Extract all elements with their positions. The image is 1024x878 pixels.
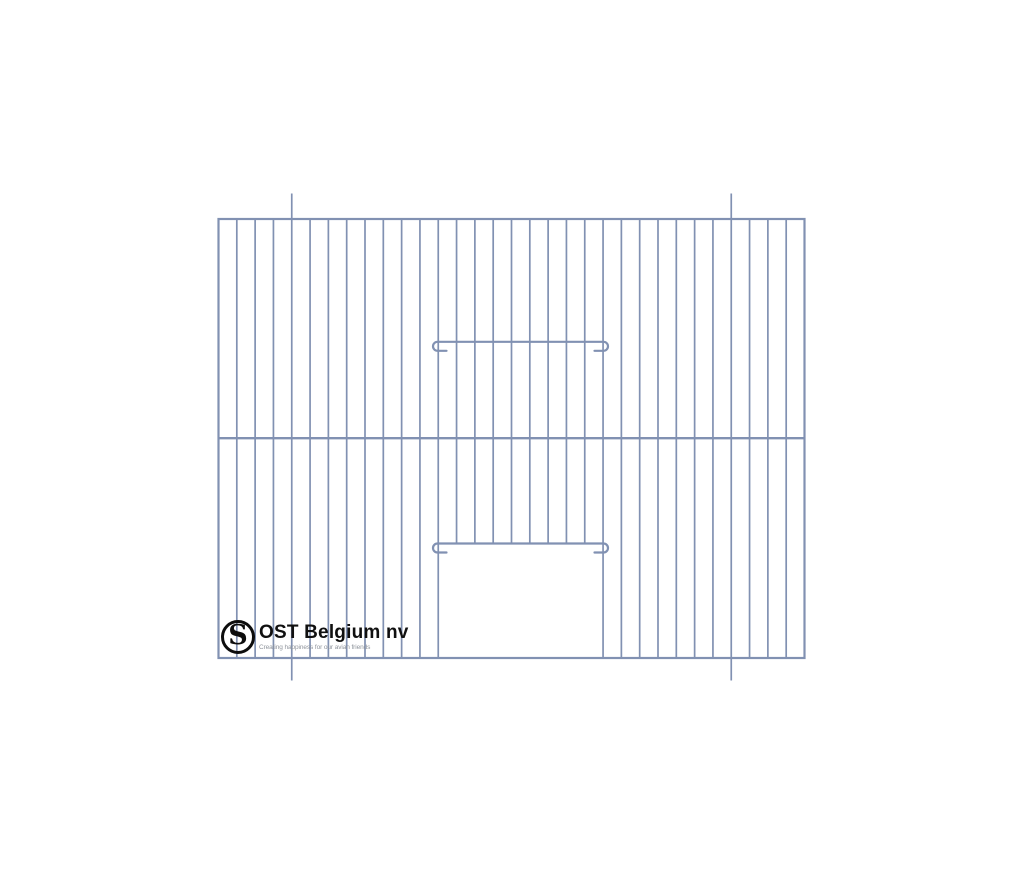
ost-monogram-icon: S: [221, 620, 255, 654]
brand-text-block: OST Belgium nv Creating happiness for ou…: [259, 623, 409, 651]
cage-front-wire-drawing: [0, 0, 1024, 878]
brand-name: OST Belgium nv: [259, 623, 409, 642]
product-image: S OST Belgium nv Creating happiness for …: [0, 0, 1024, 878]
brand-tagline: Creating happiness for our avian friends: [259, 644, 409, 651]
door-latch-wire: [433, 342, 608, 351]
door-latch-wire: [433, 544, 608, 553]
monogram-letter: S: [228, 622, 248, 649]
brand-logo: S OST Belgium nv Creating happiness for …: [221, 620, 409, 654]
